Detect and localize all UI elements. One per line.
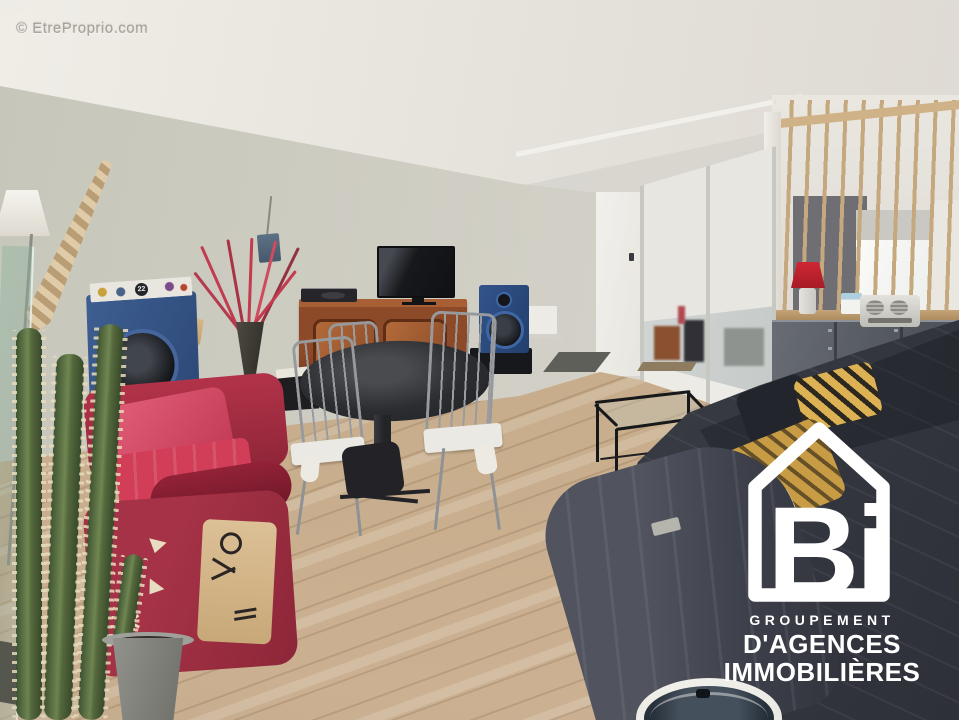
entry-door — [596, 192, 644, 376]
wood-slat-partition — [768, 100, 959, 322]
logo-monogram: Bi — [767, 481, 887, 624]
living-room-photo: 22 © EtreProprio.com B — [0, 0, 959, 720]
wardrobe-frame — [706, 146, 710, 446]
red-lamp-base — [799, 288, 816, 314]
wall-outlet — [556, 334, 563, 341]
mirror-reflection — [724, 328, 764, 366]
mirror-reflection — [678, 306, 685, 324]
mirror-reflection — [654, 326, 680, 360]
dining-chair — [424, 312, 509, 507]
red-branches — [205, 224, 285, 334]
chair-back — [425, 310, 498, 441]
logo-text-line: GROUPEMENT — [697, 612, 947, 628]
bag-under-table — [341, 440, 406, 500]
sticker-badge: 22 — [135, 283, 149, 297]
throw-motif — [219, 532, 242, 555]
watermark: © EtreProprio.com — [16, 20, 148, 37]
throw-motif — [211, 567, 236, 581]
door-sill-mat — [637, 362, 697, 371]
chair-back — [291, 335, 364, 454]
cactus-column — [16, 328, 42, 720]
agency-logo: Bi GROUPEMENT D'AGENCES IMMOBILIÈRES — [697, 406, 947, 696]
tv-stand-base — [402, 302, 436, 305]
tv-screen — [379, 248, 453, 296]
throw-motif — [234, 615, 256, 621]
radio-dial — [868, 318, 912, 323]
glass-table-leg — [596, 404, 599, 462]
intercom — [626, 247, 638, 279]
throw-motif — [234, 608, 256, 614]
cushion-tie — [300, 455, 321, 483]
tweeter — [496, 292, 512, 308]
tv — [377, 246, 455, 298]
logo-text-line: IMMOBILIÈRES — [697, 657, 947, 688]
cushion-tie — [474, 442, 499, 475]
logo-text-line: D'AGENCES — [697, 629, 947, 660]
vintage-radio — [860, 295, 920, 327]
radio-grille — [890, 300, 908, 315]
mirror-reflection — [684, 320, 704, 362]
radio-grille — [866, 300, 884, 315]
turntable — [301, 288, 357, 302]
postcard — [841, 293, 862, 314]
